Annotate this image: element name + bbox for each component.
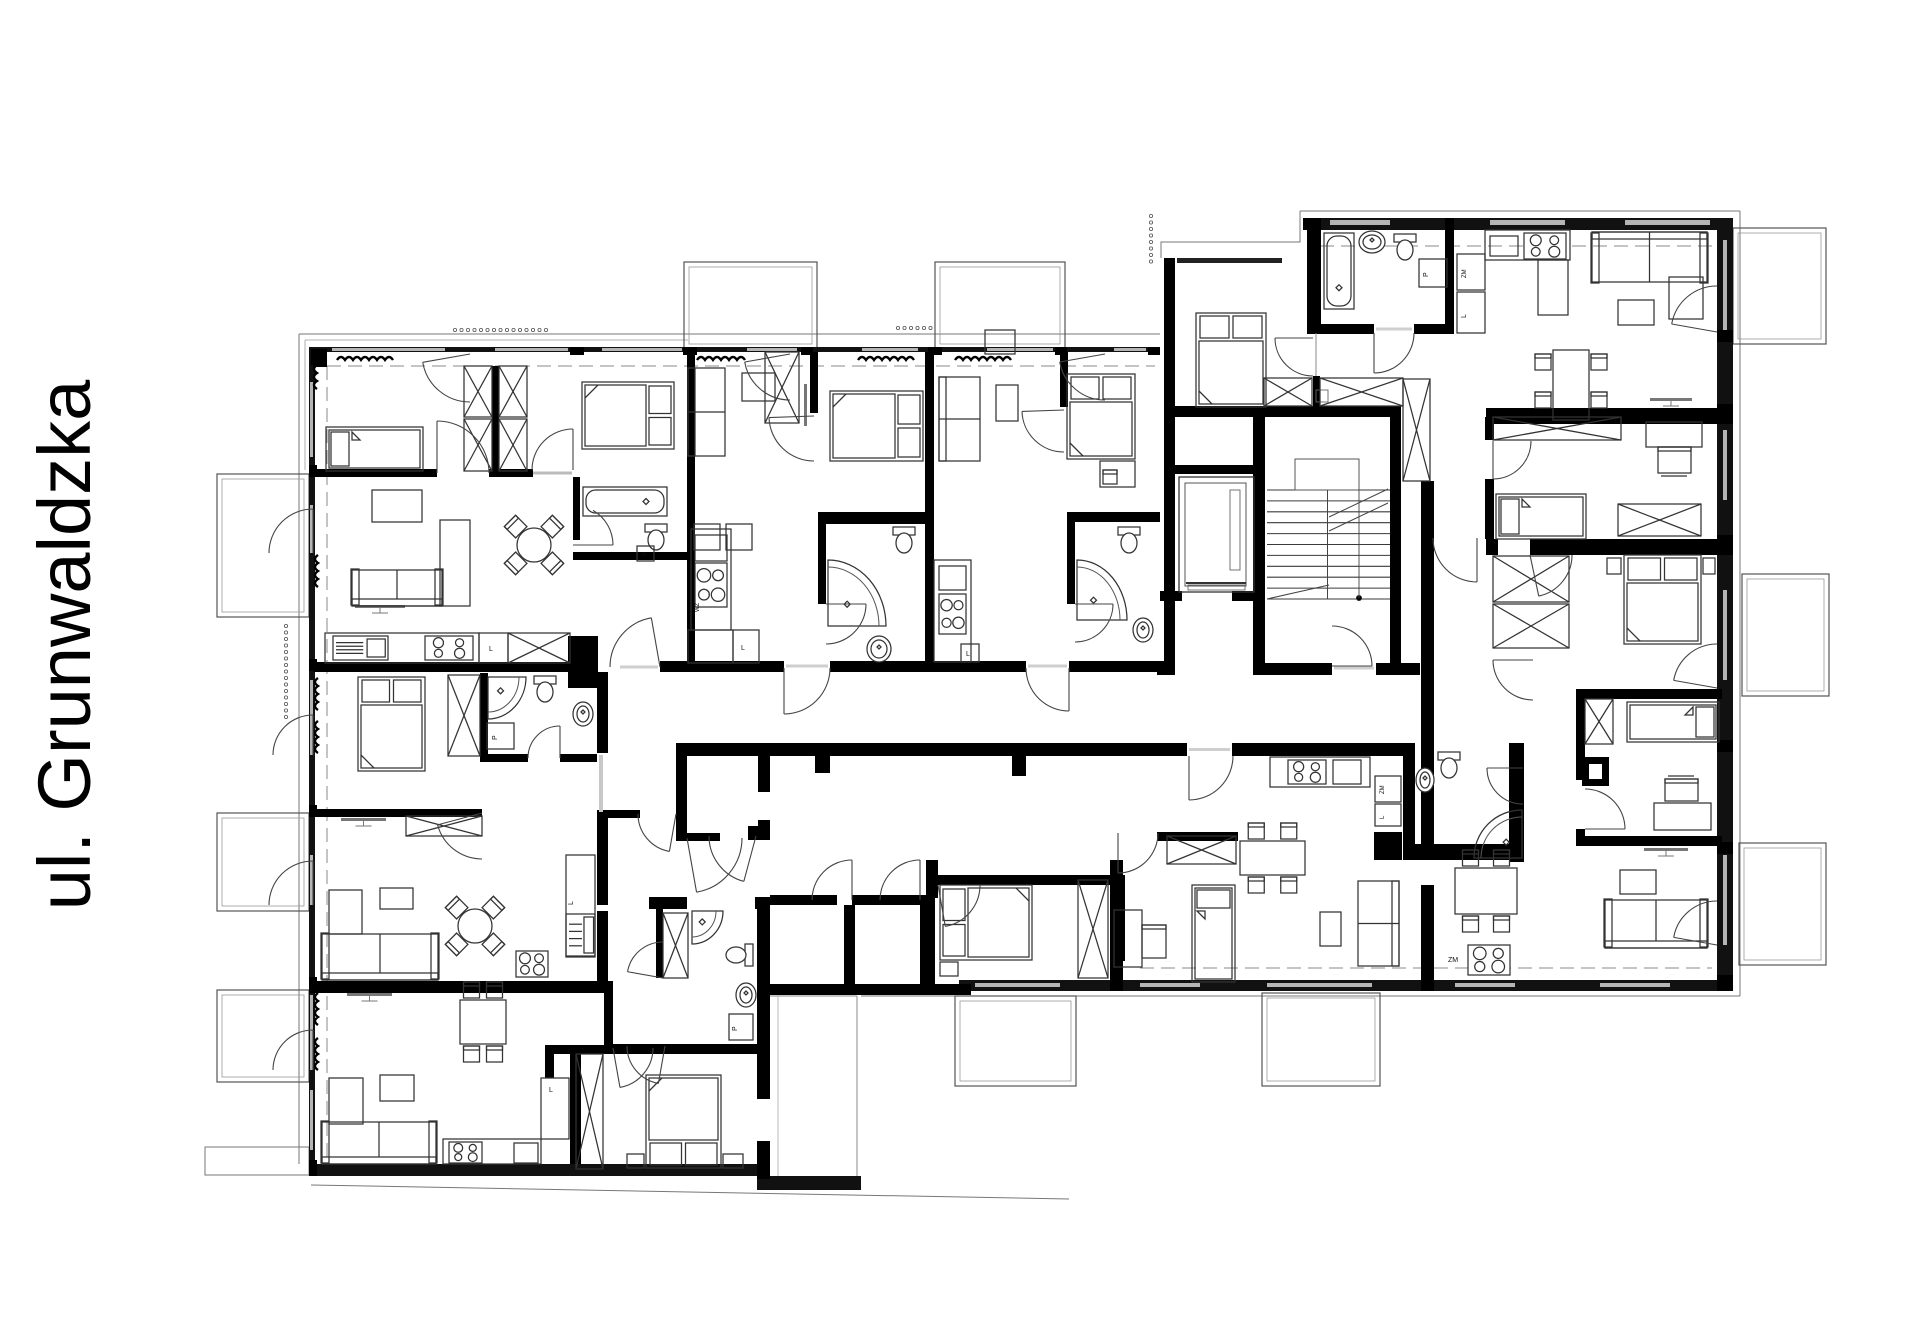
svg-text:L: L [966, 651, 970, 658]
svg-text:P: P [492, 735, 499, 740]
svg-text:ZM: ZM [1380, 785, 1386, 794]
svg-text:ZM: ZM [1448, 957, 1458, 964]
svg-text:L: L [741, 645, 745, 652]
svg-text:ZM: ZM [1462, 269, 1468, 278]
svg-text:L: L [489, 646, 493, 653]
svg-text:ul. Grunwaldzka: ul. Grunwaldzka [23, 379, 106, 910]
svg-text:P: P [1423, 272, 1430, 277]
svg-text:WZ: WZ [695, 602, 701, 612]
svg-text:P: P [642, 553, 646, 559]
svg-text:L: L [549, 1087, 553, 1094]
svg-text:P: P [732, 1026, 739, 1031]
svg-text:L: L [568, 901, 575, 905]
svg-text:L: L [1461, 314, 1468, 318]
